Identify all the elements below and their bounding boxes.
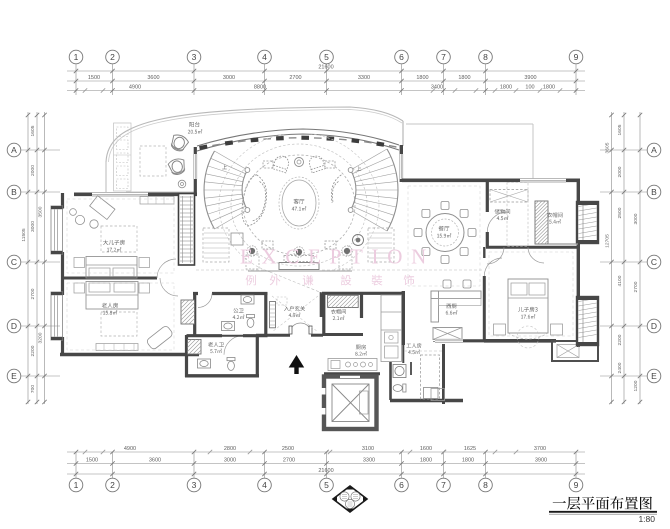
svg-text:21600: 21600 xyxy=(318,468,333,474)
svg-text:3600: 3600 xyxy=(147,75,159,81)
svg-text:2800: 2800 xyxy=(224,446,236,452)
svg-text:B: B xyxy=(651,187,657,197)
svg-text:1:80: 1:80 xyxy=(638,514,655,524)
svg-text:2700: 2700 xyxy=(283,457,295,463)
svg-text:4100: 4100 xyxy=(617,275,623,286)
svg-text:EXCEPTION: EXCEPTION xyxy=(240,245,435,269)
svg-text:1800: 1800 xyxy=(416,75,428,81)
svg-text:6: 6 xyxy=(399,480,404,490)
svg-text:6: 6 xyxy=(399,52,404,62)
svg-text:3000: 3000 xyxy=(633,213,639,224)
svg-text:1600: 1600 xyxy=(420,446,432,452)
svg-text:1800: 1800 xyxy=(543,84,555,90)
svg-text:3900: 3900 xyxy=(524,75,536,81)
svg-text:2700: 2700 xyxy=(30,288,36,299)
svg-text:2500: 2500 xyxy=(282,446,294,452)
svg-text:2: 2 xyxy=(110,480,115,490)
svg-text:C: C xyxy=(11,257,17,267)
svg-text:21600: 21600 xyxy=(318,65,333,71)
svg-text:3600: 3600 xyxy=(149,457,161,463)
svg-text:2700: 2700 xyxy=(289,75,301,81)
svg-text:1800: 1800 xyxy=(500,84,512,90)
svg-text:7: 7 xyxy=(441,480,446,490)
svg-text:100: 100 xyxy=(525,84,534,90)
svg-text:3: 3 xyxy=(192,52,197,62)
svg-text:8: 8 xyxy=(483,52,488,62)
svg-text:2700: 2700 xyxy=(633,281,639,292)
svg-text:C: C xyxy=(651,257,657,267)
svg-text:3000: 3000 xyxy=(223,75,235,81)
svg-text:9: 9 xyxy=(574,480,579,490)
svg-text:3: 3 xyxy=(192,480,197,490)
svg-text:3300: 3300 xyxy=(363,457,375,463)
svg-text:3100: 3100 xyxy=(362,446,374,452)
svg-text:A: A xyxy=(11,145,17,155)
svg-text:8800: 8800 xyxy=(254,84,266,90)
svg-text:7: 7 xyxy=(441,52,446,62)
svg-text:1500: 1500 xyxy=(86,457,98,463)
svg-text:2200: 2200 xyxy=(617,334,623,345)
svg-text:3700: 3700 xyxy=(534,446,546,452)
svg-text:3900: 3900 xyxy=(535,457,547,463)
svg-text:1625: 1625 xyxy=(464,446,476,452)
svg-text:1800: 1800 xyxy=(420,457,432,463)
svg-text:3300: 3300 xyxy=(358,75,370,81)
svg-text:E: E xyxy=(11,371,17,381)
svg-text:12705: 12705 xyxy=(604,234,610,248)
svg-text:3400: 3400 xyxy=(431,84,443,90)
svg-text:E: E xyxy=(651,371,657,381)
svg-text:5: 5 xyxy=(324,480,329,490)
svg-text:700: 700 xyxy=(30,385,36,393)
svg-text:9: 9 xyxy=(574,52,579,62)
svg-text:3000: 3000 xyxy=(30,221,36,232)
svg-text:2000: 2000 xyxy=(617,166,623,177)
svg-text:A: A xyxy=(651,145,657,155)
svg-text:4: 4 xyxy=(262,480,267,490)
svg-text:1605: 1605 xyxy=(30,125,36,136)
svg-text:2000: 2000 xyxy=(30,165,36,176)
svg-text:3200: 3200 xyxy=(37,332,43,343)
svg-text:3000: 3000 xyxy=(224,457,236,463)
svg-text:D: D xyxy=(11,321,17,331)
svg-text:2400: 2400 xyxy=(617,362,623,373)
svg-text:4900: 4900 xyxy=(124,446,136,452)
svg-text:1800: 1800 xyxy=(462,457,474,463)
svg-text:1: 1 xyxy=(74,52,79,62)
svg-text:5: 5 xyxy=(324,52,329,62)
svg-text:1: 1 xyxy=(74,480,79,490)
svg-text:11505: 11505 xyxy=(21,228,27,242)
svg-text:D: D xyxy=(651,321,657,331)
svg-text:2200: 2200 xyxy=(30,345,36,356)
svg-text:4900: 4900 xyxy=(129,84,141,90)
svg-text:1800: 1800 xyxy=(458,75,470,81)
svg-text:1500: 1500 xyxy=(88,75,100,81)
svg-text:3500: 3500 xyxy=(37,206,43,217)
svg-text:2500: 2500 xyxy=(617,207,623,218)
svg-text:2: 2 xyxy=(110,52,115,62)
svg-text:4: 4 xyxy=(262,52,267,62)
svg-text:8: 8 xyxy=(483,480,488,490)
svg-text:1605: 1605 xyxy=(617,124,623,135)
svg-text:1200: 1200 xyxy=(633,380,639,391)
svg-text:B: B xyxy=(11,187,17,197)
